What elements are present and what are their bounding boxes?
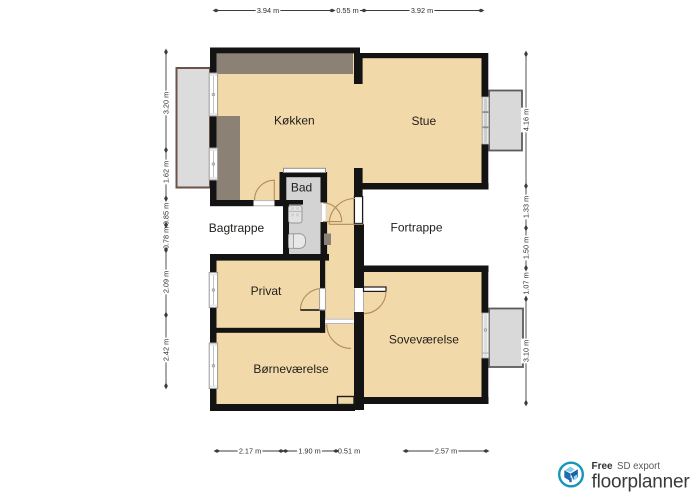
svg-text:0.51 m: 0.51 m xyxy=(338,447,360,456)
svg-text:Stue: Stue xyxy=(411,114,436,128)
svg-text:2.57 m: 2.57 m xyxy=(435,447,457,456)
svg-text:1.90 m: 1.90 m xyxy=(298,447,320,456)
svg-text:3.94 m: 3.94 m xyxy=(257,6,279,15)
svg-text:3.10 m: 3.10 m xyxy=(522,340,531,362)
svg-text:3.20 m: 3.20 m xyxy=(162,92,171,114)
svg-text:floorplanner: floorplanner xyxy=(592,471,691,492)
svg-text:Fortrappe: Fortrappe xyxy=(390,221,442,235)
svg-text:Bagtrappe: Bagtrappe xyxy=(209,221,265,235)
svg-text:Bad: Bad xyxy=(291,180,312,194)
svg-text:Soveværelse: Soveværelse xyxy=(389,333,459,347)
svg-text:2.17 m: 2.17 m xyxy=(239,447,261,456)
svg-text:1.33 m: 1.33 m xyxy=(522,196,531,218)
svg-text:Privat: Privat xyxy=(251,284,282,298)
svg-text:3.92 m: 3.92 m xyxy=(411,6,433,15)
svg-text:Køkken: Køkken xyxy=(274,114,315,128)
svg-text:2.42 m: 2.42 m xyxy=(162,339,171,361)
svg-text:Børneværelse: Børneværelse xyxy=(253,362,329,376)
svg-text:1.07 m: 1.07 m xyxy=(522,272,531,294)
svg-text:1.62 m: 1.62 m xyxy=(162,161,171,183)
svg-text:2.09 m: 2.09 m xyxy=(162,271,171,293)
svg-text:1.50 m: 1.50 m xyxy=(522,237,531,259)
svg-text:4.16 m: 4.16 m xyxy=(522,109,531,131)
svg-text:0.78 m: 0.78 m xyxy=(162,227,171,249)
svg-text:0.55 m: 0.55 m xyxy=(336,6,358,15)
